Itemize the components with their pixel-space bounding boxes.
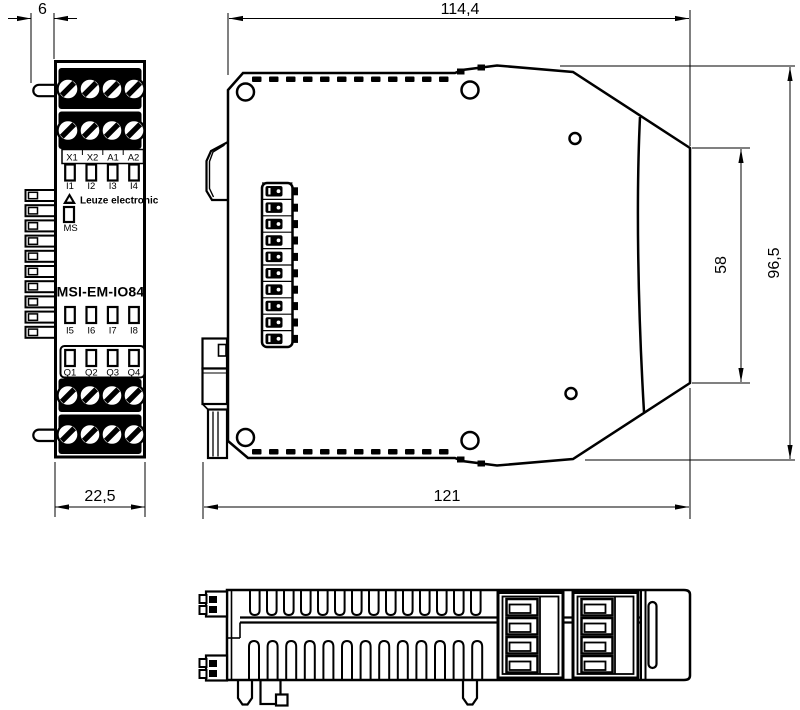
led-label-i4: I4 xyxy=(130,181,138,192)
led-label-i1: I1 xyxy=(66,181,74,192)
din-mount-pin-bottom xyxy=(33,430,56,441)
model-designation: MSI-EM-IO84 xyxy=(57,284,145,300)
led-label-i7: I7 xyxy=(109,326,117,337)
terminal-screws-bottom xyxy=(58,379,145,455)
led-label-i6: I6 xyxy=(87,326,95,337)
led-label-i2: I2 xyxy=(87,181,95,192)
bus-connector-side xyxy=(262,183,298,347)
terminal-block-1 xyxy=(498,593,563,679)
side-slot xyxy=(649,602,657,668)
brand-name: Leuze electronic xyxy=(80,196,159,207)
drawing-canvas: X1 X2 A1 A2 I1 I2 I3 I4 Leuze electronic… xyxy=(0,0,800,710)
led-row-outputs: Q1 Q2 Q3 Q4 xyxy=(61,346,145,379)
terminal-label-a1: A1 xyxy=(107,153,119,164)
terminal-screws-top xyxy=(58,68,145,149)
foot-pin-right xyxy=(463,680,477,705)
led-label-i3: I3 xyxy=(109,181,117,192)
dim-label-recess-height: 58 xyxy=(713,256,730,274)
led-label-i8: I8 xyxy=(130,326,138,337)
dim-label-bottom-width: 121 xyxy=(434,488,461,505)
led-label-q4: Q4 xyxy=(128,368,141,379)
terminal-label-x2: X2 xyxy=(87,153,99,164)
bus-tab-bottom xyxy=(200,656,228,681)
led-label-q3: Q3 xyxy=(106,368,119,379)
terminal-label-strip: X1 X2 A1 A2 xyxy=(62,150,144,164)
dim-label-total-height: 96,5 xyxy=(766,247,783,278)
ms-label: MS xyxy=(64,223,78,234)
dim-label-front-width: 22,5 xyxy=(84,488,115,505)
technical-drawing-page: X1 X2 A1 A2 I1 I2 I3 I4 Leuze electronic… xyxy=(0,0,800,710)
terminal-label-x1: X1 xyxy=(66,153,78,164)
dim-label-top-width: 114,4 xyxy=(441,1,480,18)
terminal-block-2 xyxy=(573,593,638,679)
bus-tab-top xyxy=(200,592,228,617)
led-label-i5: I5 xyxy=(66,326,74,337)
din-mount-pin-top xyxy=(33,85,56,96)
led-label-q2: Q2 xyxy=(85,368,98,379)
terminal-label-a2: A2 xyxy=(128,153,140,164)
led-label-q1: Q1 xyxy=(64,368,77,379)
dim-label-pin-offset: 6 xyxy=(38,1,47,18)
foot-pin-left xyxy=(238,680,252,705)
